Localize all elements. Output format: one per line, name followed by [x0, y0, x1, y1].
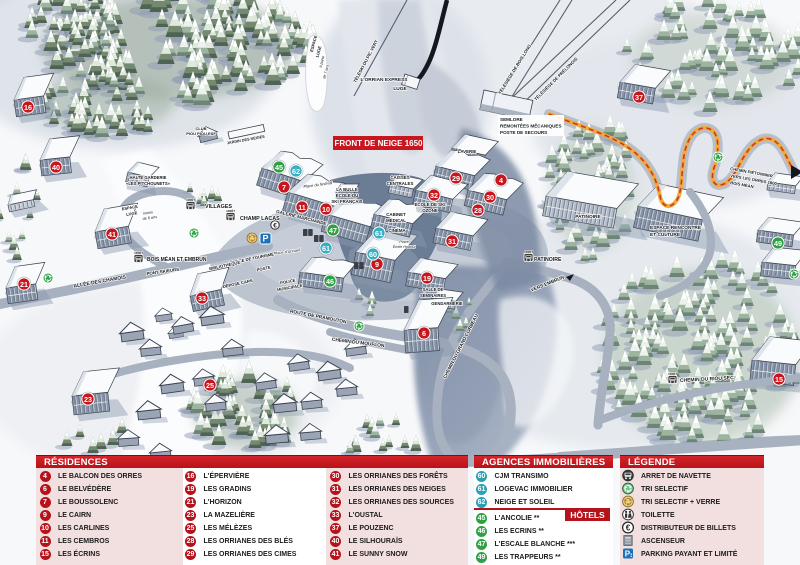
- svg-text:PATINOIRE: PATINOIRE: [534, 257, 562, 263]
- svg-text:VILLAGES: VILLAGES: [205, 204, 232, 210]
- svg-text:FRONT DE NEIGE 1650: FRONT DE NEIGE 1650: [334, 139, 423, 148]
- svg-text:21: 21: [20, 280, 28, 289]
- svg-text:SÉMINAIRES: SÉMINAIRES: [420, 293, 446, 298]
- svg-text:SKI FRANÇAIS: SKI FRANÇAIS: [331, 199, 362, 204]
- svg-text:HALTE GARDERIE: HALTE GARDERIE: [130, 175, 167, 180]
- svg-text:6: 6: [422, 329, 426, 338]
- svg-text:7: 7: [282, 183, 286, 192]
- svg-text:LAVERIE: LAVERIE: [458, 149, 477, 154]
- svg-text:Place: Place: [399, 240, 409, 244]
- svg-text:37: 37: [635, 93, 643, 102]
- svg-text:40: 40: [52, 163, 60, 172]
- svg-text:LA BULLE: LA BULLE: [336, 187, 358, 192]
- svg-text:60: 60: [369, 250, 377, 259]
- svg-text:30: 30: [486, 193, 494, 202]
- svg-text:ESPACE RENCONTRE: ESPACE RENCONTRE: [650, 225, 702, 231]
- svg-text:19: 19: [423, 274, 431, 283]
- svg-text:L'ORRIAN EXPRESS: L'ORRIAN EXPRESS: [361, 77, 409, 83]
- svg-text:9: 9: [375, 260, 379, 269]
- svg-text:31: 31: [448, 237, 456, 246]
- svg-text:MÉDICAL: MÉDICAL: [386, 218, 406, 223]
- svg-text:23: 23: [84, 395, 92, 404]
- svg-text:16: 16: [24, 103, 32, 112]
- svg-text:CABINET: CABINET: [386, 212, 406, 217]
- svg-text:OZONE: OZONE: [422, 208, 438, 213]
- svg-text:€: €: [626, 524, 631, 533]
- svg-text:41: 41: [108, 230, 116, 239]
- svg-text:GENDARMERIE: GENDARMERIE: [431, 301, 463, 306]
- svg-text:47: 47: [329, 226, 337, 235]
- svg-text:29: 29: [452, 174, 460, 183]
- svg-text:REMONTÉES MÉCANIQUES: REMONTÉES MÉCANIQUES: [500, 122, 562, 129]
- svg-text:61: 61: [375, 229, 383, 238]
- svg-text:11: 11: [298, 203, 306, 212]
- svg-text:CENTRALES: CENTRALES: [387, 181, 414, 186]
- svg-text:CINÉMA: CINÉMA: [388, 228, 406, 233]
- svg-text:CAISSES: CAISSES: [390, 175, 409, 180]
- svg-text:33: 33: [198, 294, 206, 303]
- svg-text:ET CULTURE: ET CULTURE: [650, 232, 681, 238]
- svg-text:«LES PITCHOUNETS»: «LES PITCHOUNETS»: [126, 181, 171, 186]
- svg-text:61: 61: [322, 244, 330, 253]
- svg-text:Émile Hodoul: Émile Hodoul: [393, 244, 416, 249]
- svg-text:15: 15: [775, 375, 783, 384]
- svg-text:P: P: [262, 234, 268, 244]
- svg-text:28: 28: [474, 206, 482, 215]
- svg-text:PIOU PIOU ESF: PIOU PIOU ESF: [186, 131, 216, 136]
- svg-text:POSTE DE SECOURS: POSTE DE SECOURS: [500, 130, 547, 135]
- svg-text:LUGE: LUGE: [393, 86, 407, 92]
- svg-text:CHAMP LACAS: CHAMP LACAS: [240, 216, 280, 222]
- svg-text:BOIS MÉAN ET EMBRUN: BOIS MÉAN ET EMBRUN: [147, 255, 207, 263]
- svg-text:32: 32: [430, 191, 438, 200]
- svg-text:10: 10: [322, 205, 330, 214]
- svg-text:P: P: [625, 550, 631, 559]
- svg-text:25: 25: [206, 381, 214, 390]
- svg-text:45: 45: [275, 163, 283, 172]
- svg-text:ÉCOLE DU: ÉCOLE DU: [336, 193, 359, 198]
- svg-text:SEMLORE: SEMLORE: [500, 117, 523, 122]
- svg-text:ÉCOLE DE SKI: ÉCOLE DE SKI: [415, 202, 446, 207]
- svg-text:€: €: [273, 222, 277, 229]
- svg-text:46: 46: [326, 277, 334, 286]
- svg-text:PATINOIRE: PATINOIRE: [575, 214, 601, 220]
- svg-text:SALLE DE: SALLE DE: [423, 287, 444, 292]
- svg-text:4: 4: [499, 176, 503, 185]
- svg-text:49: 49: [774, 239, 782, 248]
- svg-text:62: 62: [292, 167, 300, 176]
